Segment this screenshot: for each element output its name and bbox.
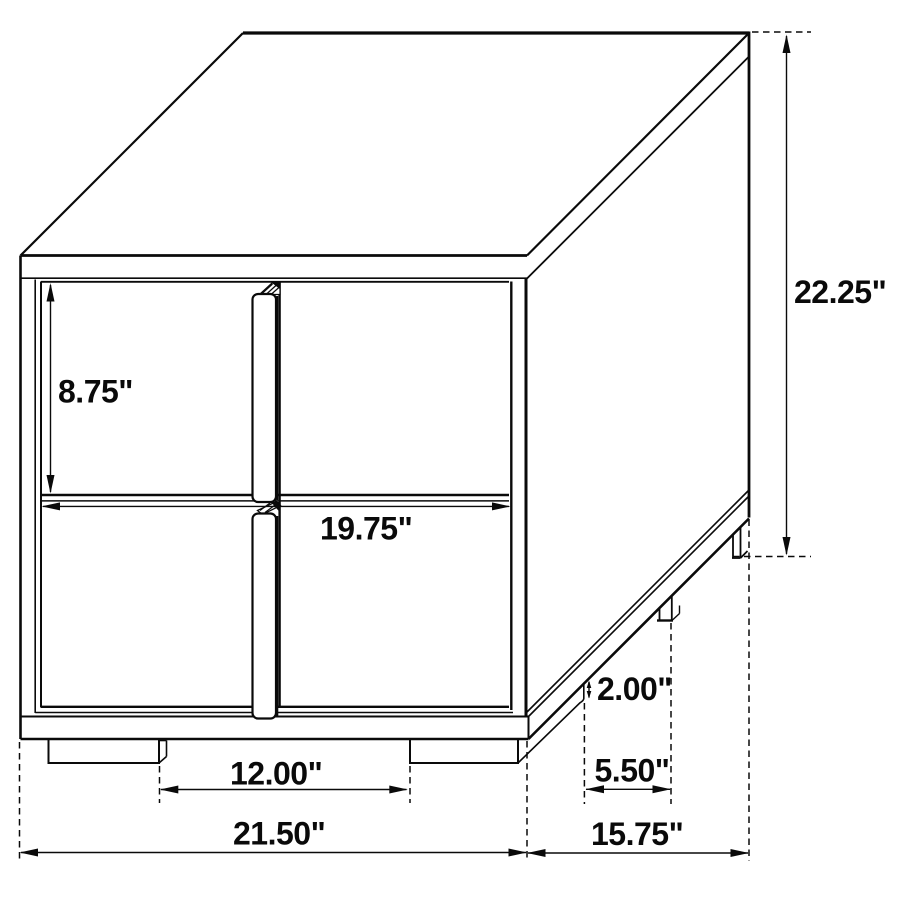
svg-text:2.00": 2.00": [597, 671, 672, 707]
svg-text:15.75": 15.75": [591, 816, 683, 852]
svg-text:22.25": 22.25": [794, 274, 886, 310]
svg-text:5.50": 5.50": [595, 753, 670, 789]
svg-text:12.00": 12.00": [230, 756, 322, 792]
svg-text:8.75": 8.75": [58, 374, 133, 410]
svg-text:21.50": 21.50": [233, 816, 325, 852]
svg-text:19.75": 19.75": [320, 511, 412, 547]
